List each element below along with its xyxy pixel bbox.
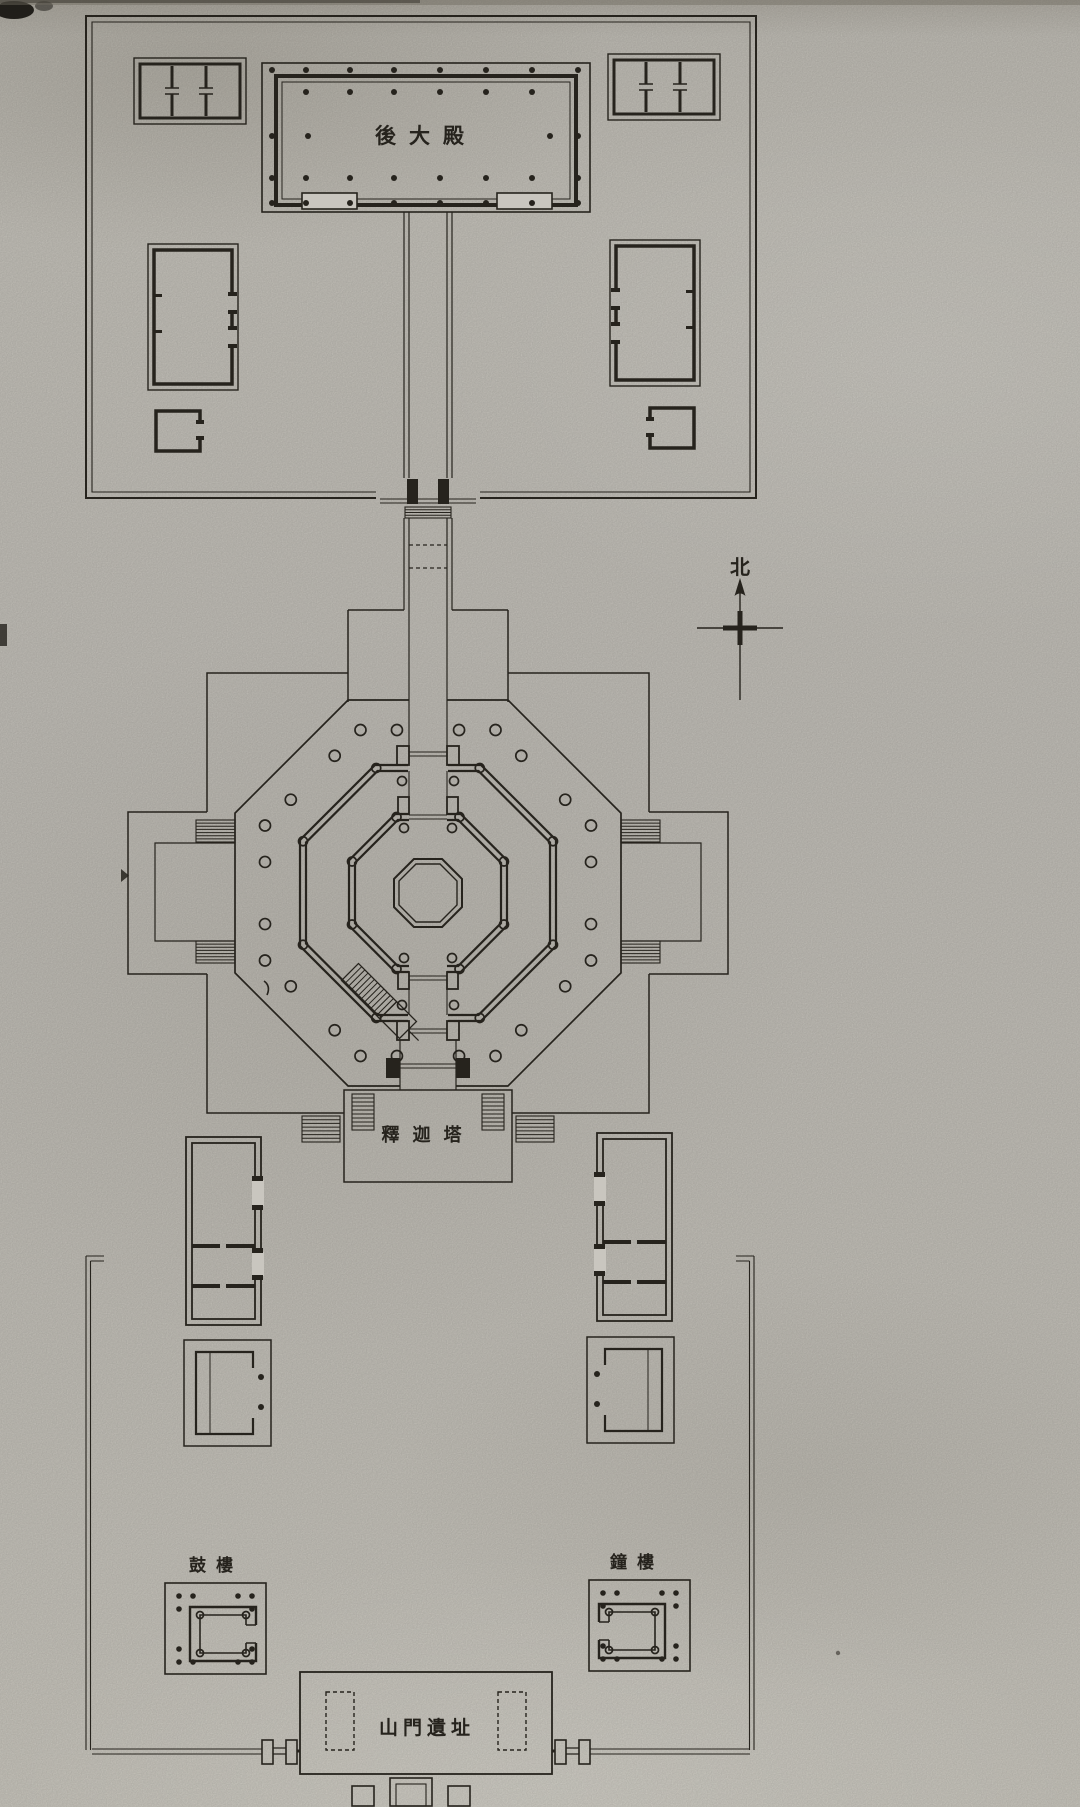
paper-texture <box>0 0 1080 1807</box>
site-plan-figure: 後大殿 釋迦塔 鼓樓 鐘樓 山門遺址 北 <box>0 0 1080 1807</box>
bell-tower-label: 鐘樓 <box>610 1552 664 1573</box>
gate-ruins-label: 山門遺址 <box>379 1716 475 1739</box>
site-plan-drawing: 後大殿 釋迦塔 鼓樓 鐘樓 山門遺址 北 <box>0 0 1080 1807</box>
rear-hall-label: 後大殿 <box>375 124 477 148</box>
north-label: 北 <box>730 555 750 579</box>
drum-tower-label: 鼓樓 <box>189 1555 243 1576</box>
pagoda-label: 釋迦塔 <box>382 1124 475 1146</box>
